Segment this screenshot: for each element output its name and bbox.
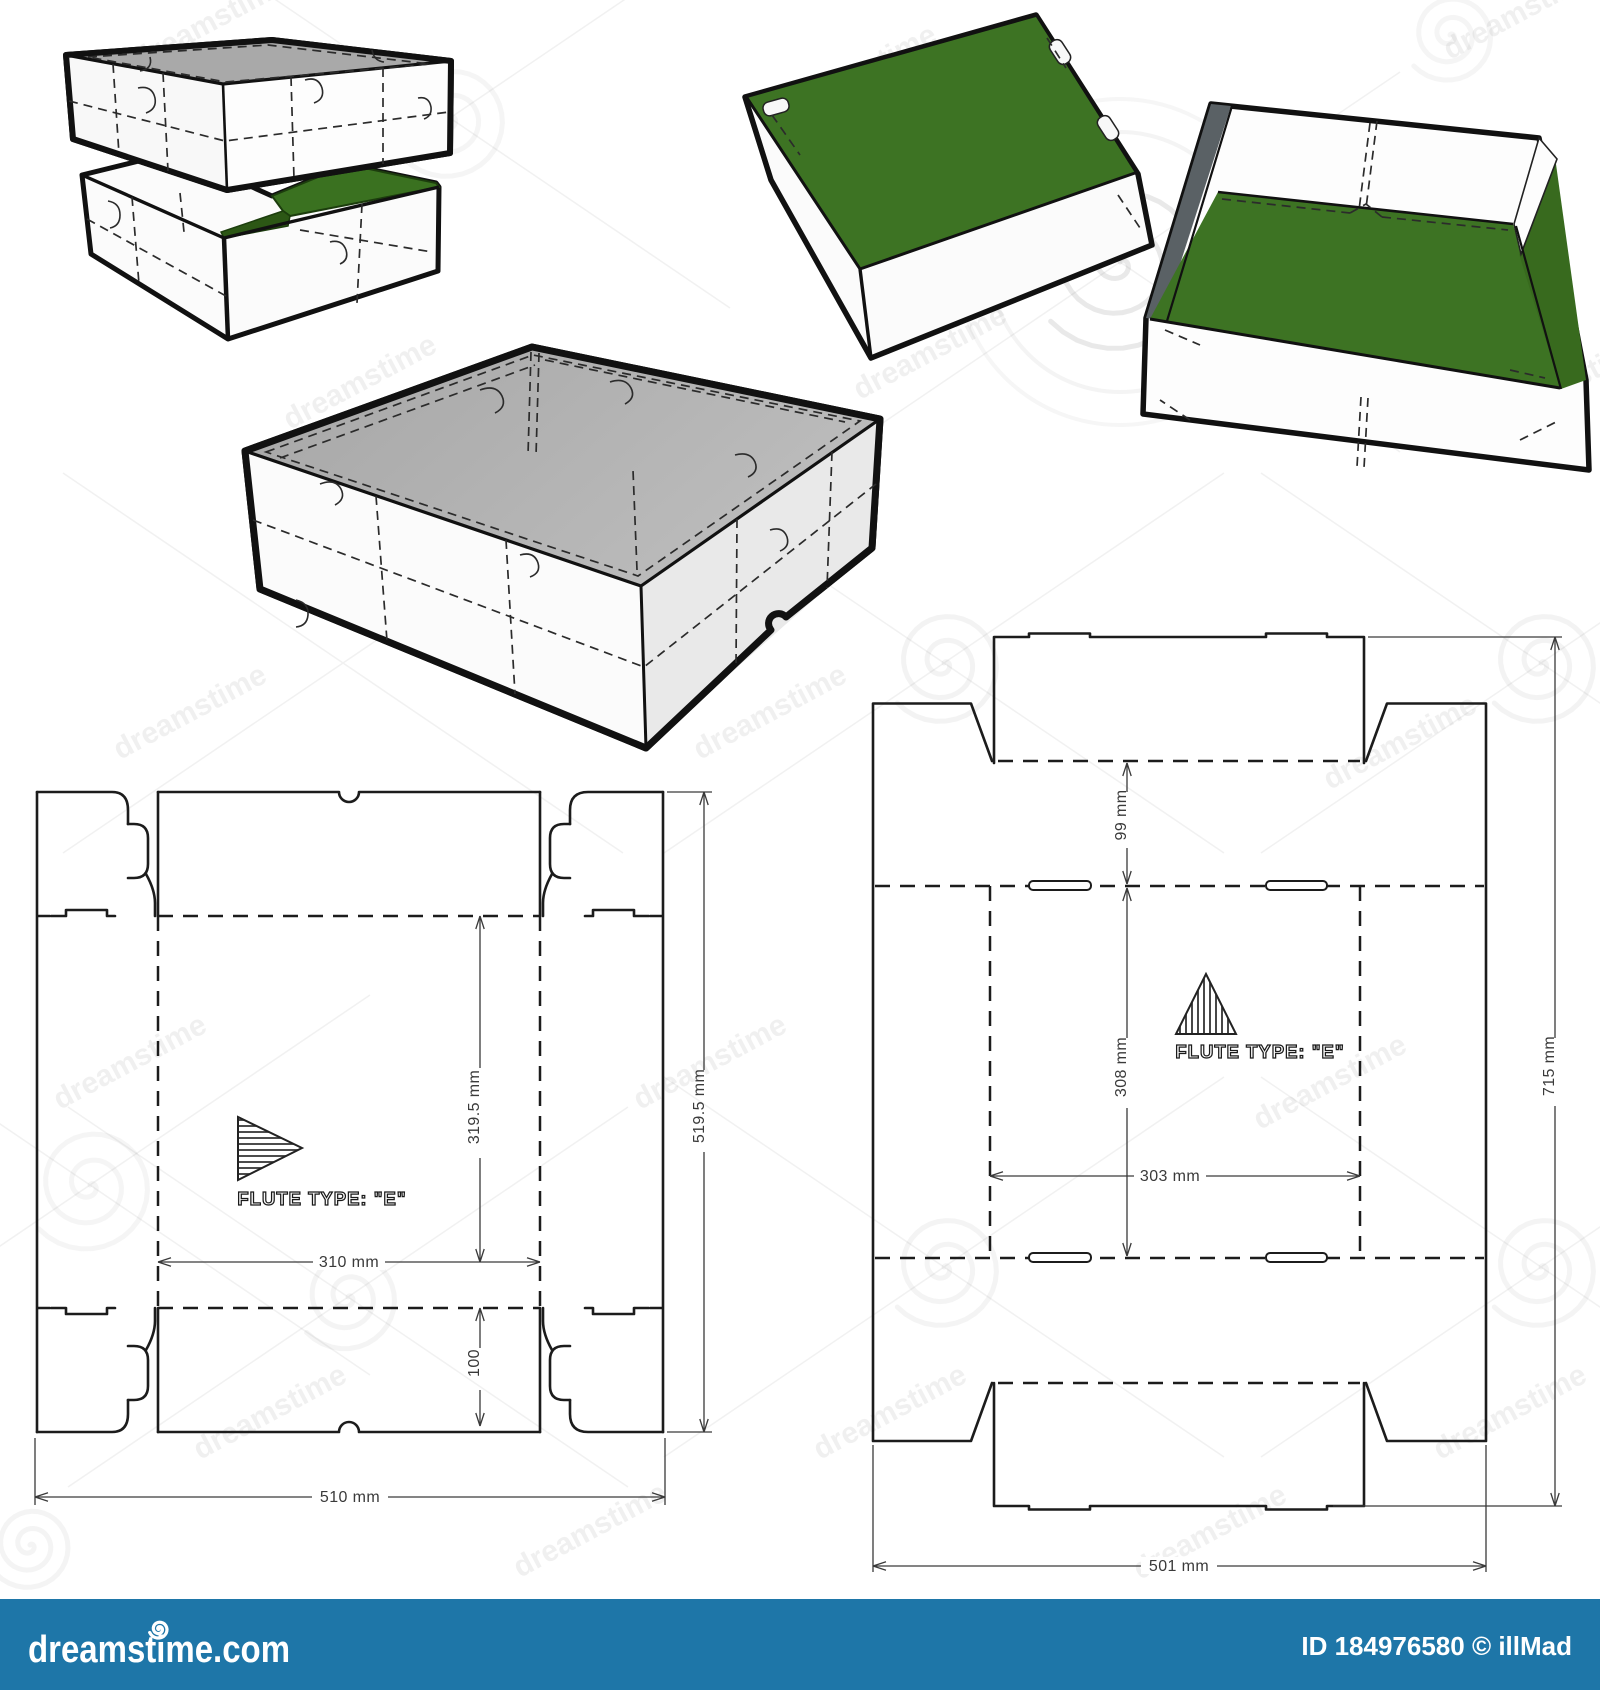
svg-text:519.5 mm: 519.5 mm	[691, 1069, 708, 1143]
svg-text:FLUTE TYPE: "E": FLUTE TYPE: "E"	[237, 1188, 406, 1209]
svg-text:303 mm: 303 mm	[1140, 1168, 1200, 1185]
svg-text:99 mm: 99 mm	[1113, 790, 1130, 841]
svg-text:dreamstime.com: dreamstime.com	[28, 1629, 290, 1671]
svg-text:510 mm: 510 mm	[320, 1489, 380, 1506]
svg-text:100: 100	[466, 1349, 483, 1377]
svg-text:319.5 mm: 319.5 mm	[466, 1070, 483, 1144]
svg-text:FLUTE TYPE: "E": FLUTE TYPE: "E"	[1175, 1041, 1344, 1062]
svg-text:715 mm: 715 mm	[1541, 1036, 1558, 1096]
svg-text:501 mm: 501 mm	[1149, 1558, 1209, 1575]
svg-text:308 mm: 308 mm	[1113, 1037, 1130, 1097]
svg-text:ID 184976580 © illMad: ID 184976580 © illMad	[1301, 1631, 1572, 1661]
svg-text:310 mm: 310 mm	[319, 1254, 379, 1271]
